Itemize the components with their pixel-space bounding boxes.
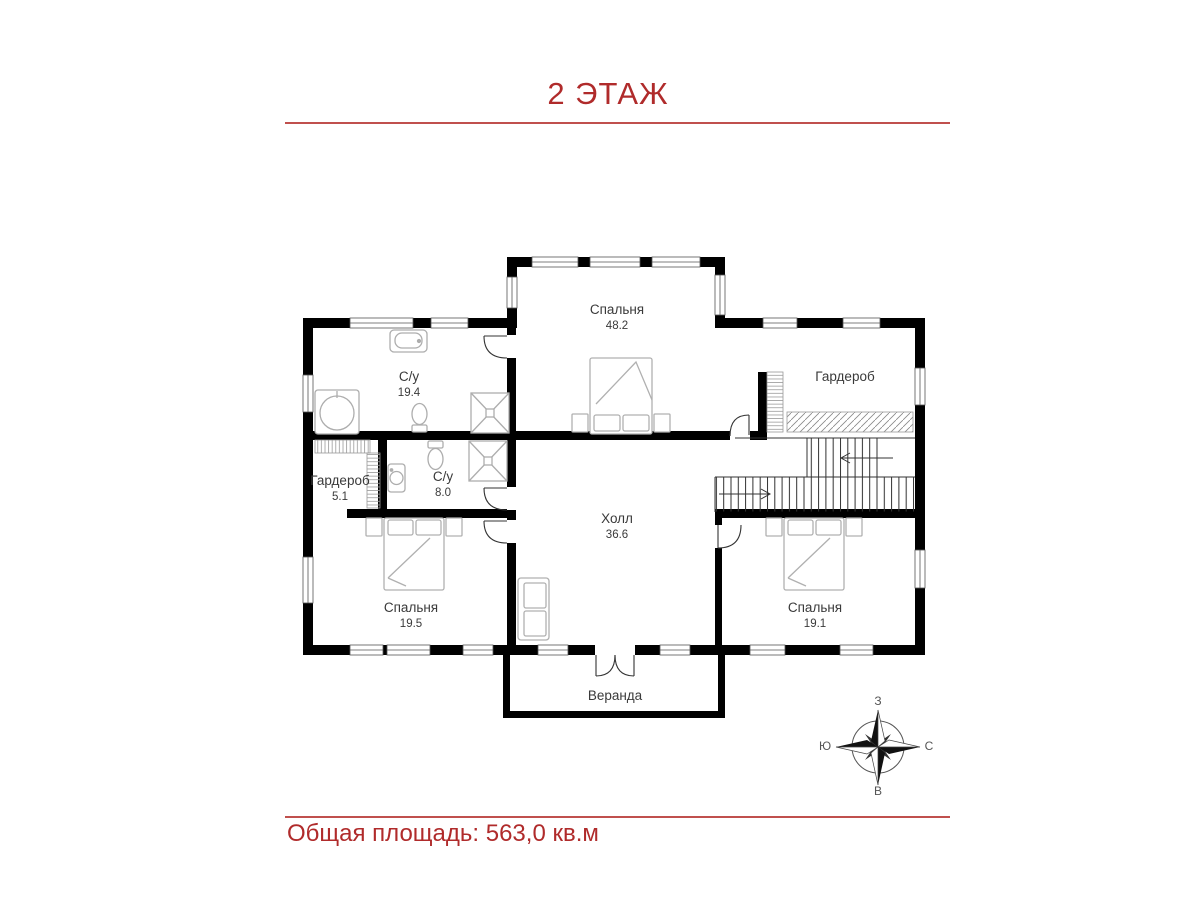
room-area: 5.1: [310, 490, 369, 505]
room-area: 19.1: [788, 617, 842, 632]
fixtures: [315, 330, 509, 492]
room-label-bedroom-left: Спальня 19.5: [384, 599, 438, 631]
floor-plan-page: 2 ЭТАЖ: [0, 0, 1200, 900]
compass-rose-icon: [836, 710, 920, 785]
room-label-bedroom-top: Спальня 48.2: [590, 301, 644, 333]
room-area: 48.2: [590, 319, 644, 334]
room-name: Спальня: [590, 301, 644, 319]
room-name: С/у: [398, 368, 420, 386]
door-bedroom-left: [484, 521, 507, 543]
room-name: Гардероб: [310, 472, 369, 490]
room-area: 8.0: [433, 486, 453, 501]
bathtub-icon: [315, 390, 359, 434]
compass-label-north: С: [925, 739, 934, 753]
footer-divider: [285, 816, 950, 818]
toilet-icon: [428, 441, 443, 470]
shower-icon: [469, 441, 507, 481]
bed-icon: [766, 518, 862, 590]
room-name: Спальня: [788, 599, 842, 617]
compass-label-east: В: [874, 784, 882, 798]
room-area: 19.5: [384, 617, 438, 632]
veranda-double-door: [596, 655, 634, 676]
room-label-bathroom-large: С/у 19.4: [398, 368, 420, 400]
bed-icon: [366, 518, 462, 590]
room-label-veranda: Веранда: [588, 687, 642, 705]
door-bathroom-small: [484, 488, 507, 510]
room-label-wardrobe-large: Гардероб: [815, 368, 874, 386]
shower-icon: [471, 393, 509, 433]
staircase: [715, 438, 915, 512]
total-area-text: Общая площадь: 563,0 кв.м: [287, 820, 599, 848]
room-area: 19.4: [398, 386, 420, 401]
room-label-bathroom-small: С/у 8.0: [433, 468, 453, 500]
room-label-bedroom-right: Спальня 19.1: [788, 599, 842, 631]
sink-icon: [388, 464, 405, 492]
sink-icon: [390, 330, 427, 352]
door-bathroom-large: [484, 336, 507, 358]
room-label-hall: Холл 36.6: [601, 510, 633, 542]
room-name: Веранда: [588, 687, 642, 705]
room-area: 36.6: [601, 528, 633, 543]
room-name: Гардероб: [815, 368, 874, 386]
bed-icon: [572, 358, 670, 434]
compass-label-west: З: [874, 694, 881, 708]
compass-label-south: Ю: [819, 739, 831, 753]
toilet-icon: [412, 404, 427, 433]
room-name: Холл: [601, 510, 633, 528]
room-name: С/у: [433, 468, 453, 486]
sofa-icon: [518, 578, 549, 640]
floor-plan-drawing: [0, 0, 1200, 900]
room-name: Спальня: [384, 599, 438, 617]
room-label-wardrobe-small: Гардероб 5.1: [310, 472, 369, 504]
